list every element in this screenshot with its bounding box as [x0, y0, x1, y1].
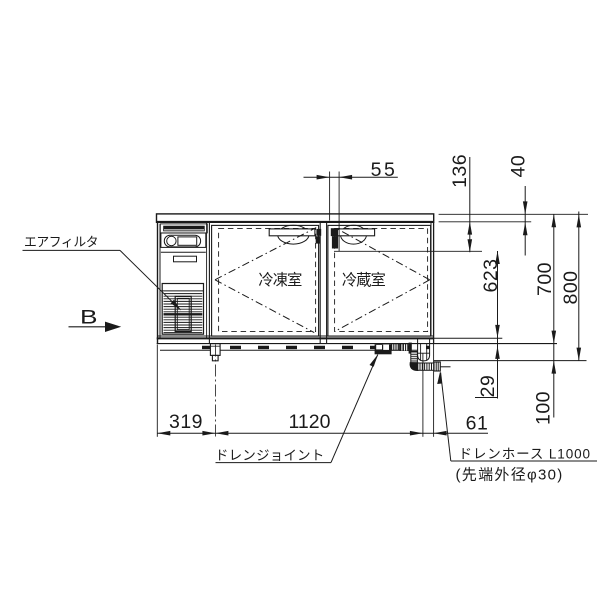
svg-text:エアフィルタ: エアフィルタ	[24, 234, 98, 249]
svg-text:29: 29	[477, 375, 499, 398]
svg-text:冷蔵室: 冷蔵室	[342, 272, 386, 289]
svg-text:700: 700	[534, 262, 556, 296]
svg-text:(先端外径φ30): (先端外径φ30)	[456, 466, 564, 483]
svg-text:100: 100	[532, 391, 554, 425]
svg-text:61: 61	[466, 412, 489, 434]
svg-text:40: 40	[508, 155, 530, 178]
svg-text:1120: 1120	[289, 411, 331, 433]
svg-text:319: 319	[169, 411, 203, 433]
svg-text:冷凍室: 冷凍室	[258, 272, 302, 289]
svg-text:136: 136	[449, 154, 471, 188]
svg-text:ドレンホース L1000: ドレンホース L1000	[459, 447, 591, 462]
svg-text:623: 623	[480, 258, 502, 292]
svg-text:ドレンジョイント: ドレンジョイント	[215, 448, 325, 463]
svg-text:55: 55	[371, 159, 398, 181]
svg-text:800: 800	[560, 270, 582, 304]
svg-text:B: B	[80, 307, 98, 329]
